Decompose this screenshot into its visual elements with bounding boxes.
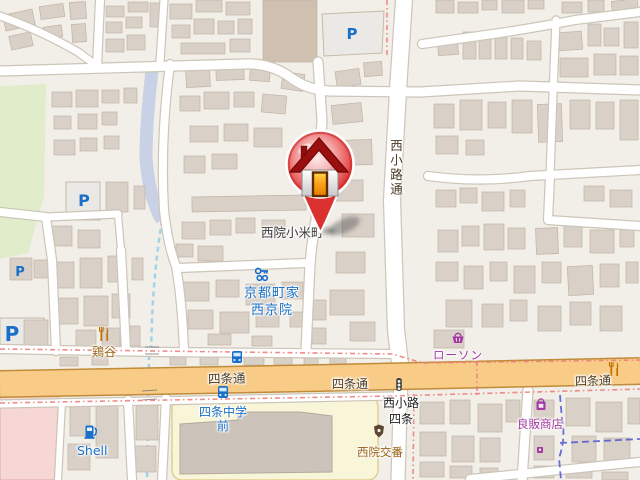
map-canvas[interactable]: P P P P 西院小米町 四条通 四条通 四条通 西小路通 西小路 四条 京都… [0, 0, 640, 480]
parking-icon-lower-left: P [5, 322, 20, 346]
parking-icon-small: P [15, 265, 25, 280]
shijo-dori-road [0, 371, 640, 384]
bus-stop-icon [232, 351, 242, 363]
shop-icon-small [537, 447, 543, 453]
main-road-fill [0, 371, 640, 384]
parking-icon-left: P [78, 191, 90, 210]
bus-stop-icon-2 [218, 386, 228, 398]
parking-icon-top: P [347, 25, 358, 43]
map-base-layer: P P P P [0, 0, 640, 480]
traffic-signal-icon [396, 378, 402, 391]
